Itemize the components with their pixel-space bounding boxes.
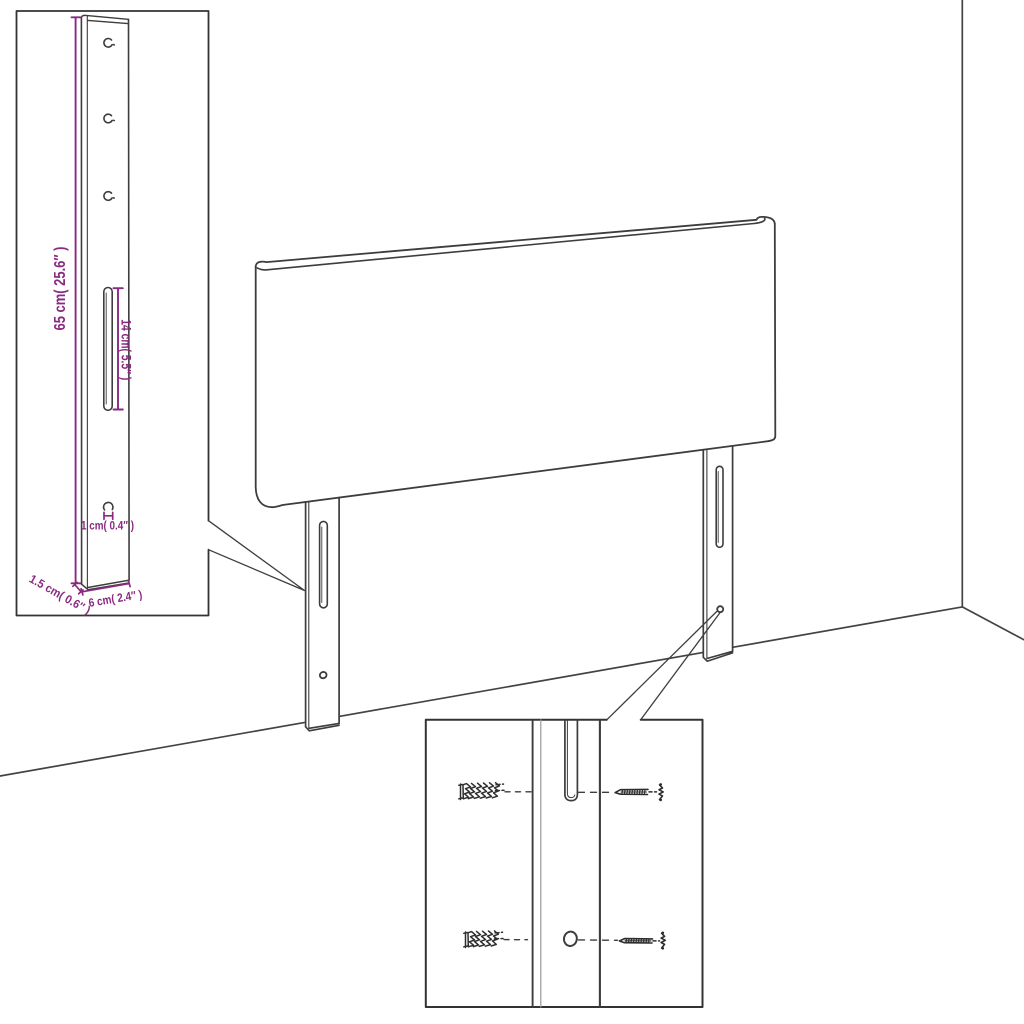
svg-text:6 cm( 2.4″ ): 6 cm( 2.4″ ) <box>88 587 144 610</box>
svg-text:14 cm( 5.5″ ): 14 cm( 5.5″ ) <box>119 319 135 380</box>
svg-text:65 cm( 25.6″ ): 65 cm( 25.6″ ) <box>52 247 69 331</box>
svg-text:1 cm( 0.4″ ): 1 cm( 0.4″ ) <box>81 519 134 533</box>
